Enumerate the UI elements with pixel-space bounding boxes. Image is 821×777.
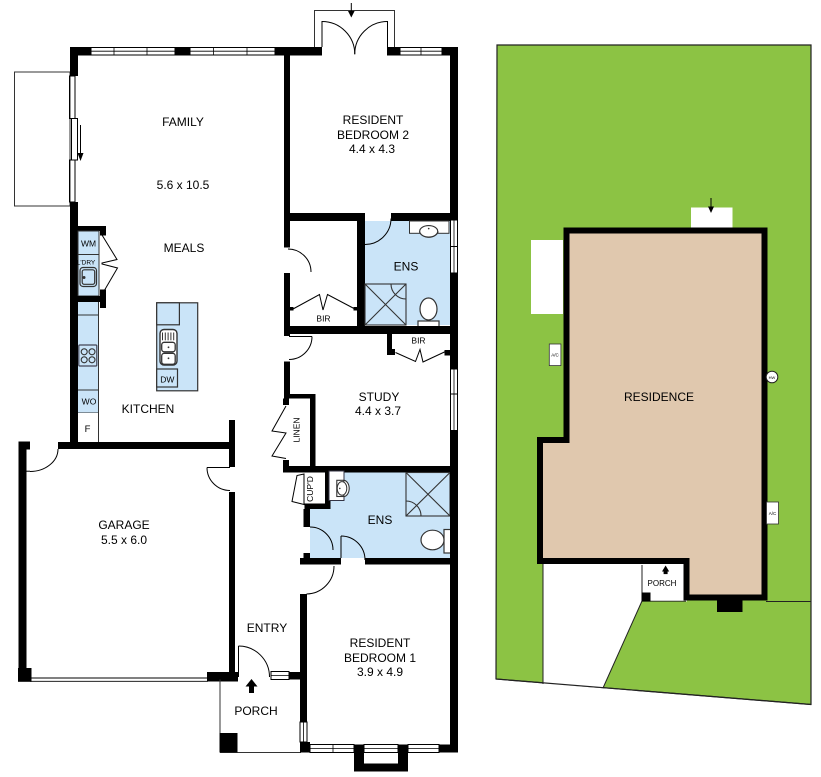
svg-text:5.5 x 6.0: 5.5 x 6.0 — [101, 533, 147, 547]
svg-text:PORCH: PORCH — [648, 579, 677, 588]
svg-text:KITCHEN: KITCHEN — [122, 402, 175, 416]
svg-text:4.4 x 3.7: 4.4 x 3.7 — [355, 404, 401, 418]
svg-text:GARAGE: GARAGE — [98, 518, 149, 532]
svg-text:WM: WM — [81, 239, 96, 249]
svg-text:3.9 x 4.9: 3.9 x 4.9 — [357, 665, 403, 679]
svg-text:CUP'D: CUP'D — [305, 476, 315, 502]
svg-text:RESIDENT: RESIDENT — [343, 113, 404, 127]
svg-text:HW: HW — [769, 375, 776, 380]
svg-text:L'DRY: L'DRY — [77, 260, 96, 267]
svg-text:LINEN: LINEN — [292, 417, 302, 442]
svg-text:4.4 x 4.3: 4.4 x 4.3 — [349, 142, 395, 156]
svg-text:MEALS: MEALS — [164, 241, 205, 255]
svg-text:WO: WO — [82, 397, 97, 407]
svg-text:BIR: BIR — [411, 336, 425, 346]
svg-text:F: F — [85, 424, 91, 435]
svg-text:STUDY: STUDY — [359, 390, 400, 404]
svg-text:BIR: BIR — [316, 314, 330, 324]
svg-text:ENS: ENS — [394, 260, 419, 274]
svg-text:DW: DW — [160, 375, 174, 385]
svg-text:BEDROOM 2: BEDROOM 2 — [337, 128, 409, 142]
svg-text:RESIDENCE: RESIDENCE — [624, 390, 694, 404]
svg-text:ENTRY: ENTRY — [247, 621, 287, 635]
svg-text:A/C: A/C — [769, 511, 777, 516]
svg-text:5.6 x 10.5: 5.6 x 10.5 — [157, 178, 210, 192]
svg-text:FAMILY: FAMILY — [162, 115, 204, 129]
svg-text:A/C: A/C — [551, 353, 559, 358]
svg-text:BEDROOM 1: BEDROOM 1 — [344, 651, 416, 665]
svg-text:RESIDENT: RESIDENT — [350, 636, 411, 650]
svg-text:ENS: ENS — [368, 513, 393, 527]
svg-text:PORCH: PORCH — [234, 704, 277, 718]
